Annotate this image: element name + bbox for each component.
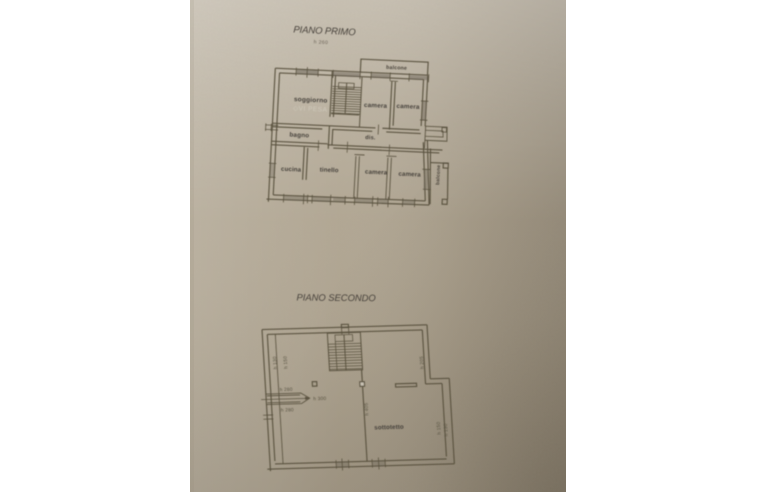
svg-text:balcone: balcone xyxy=(435,165,442,186)
svg-text:h 205: h 205 xyxy=(419,356,426,369)
svg-text:balcone: balcone xyxy=(386,65,407,72)
svg-text:h 150: h 150 xyxy=(283,356,290,369)
svg-text:sottotetto: sottotetto xyxy=(374,424,404,432)
svg-text:h 130: h 130 xyxy=(272,356,279,369)
svg-text:dis.: dis. xyxy=(365,135,376,141)
svg-text:camera: camera xyxy=(396,103,420,111)
svg-text:cucina: cucina xyxy=(281,166,302,174)
svg-text:h 405: h 405 xyxy=(364,402,371,415)
svg-text:h 130: h 130 xyxy=(443,423,450,436)
svg-text:PIANO SECONDO: PIANO SECONDO xyxy=(296,292,376,304)
svg-text:h 280: h 280 xyxy=(279,387,292,393)
svg-text:tinello: tinello xyxy=(319,166,338,174)
svg-text:h 260: h 260 xyxy=(314,39,329,46)
svg-text:bagno: bagno xyxy=(289,132,309,140)
svg-text:h 300: h 300 xyxy=(313,396,326,402)
svg-text:camera: camera xyxy=(365,169,388,177)
svg-text:camera: camera xyxy=(398,171,421,179)
svg-text:camera: camera xyxy=(364,102,388,110)
svg-text:h 280: h 280 xyxy=(281,407,294,413)
svg-text:h 150: h 150 xyxy=(436,421,443,434)
